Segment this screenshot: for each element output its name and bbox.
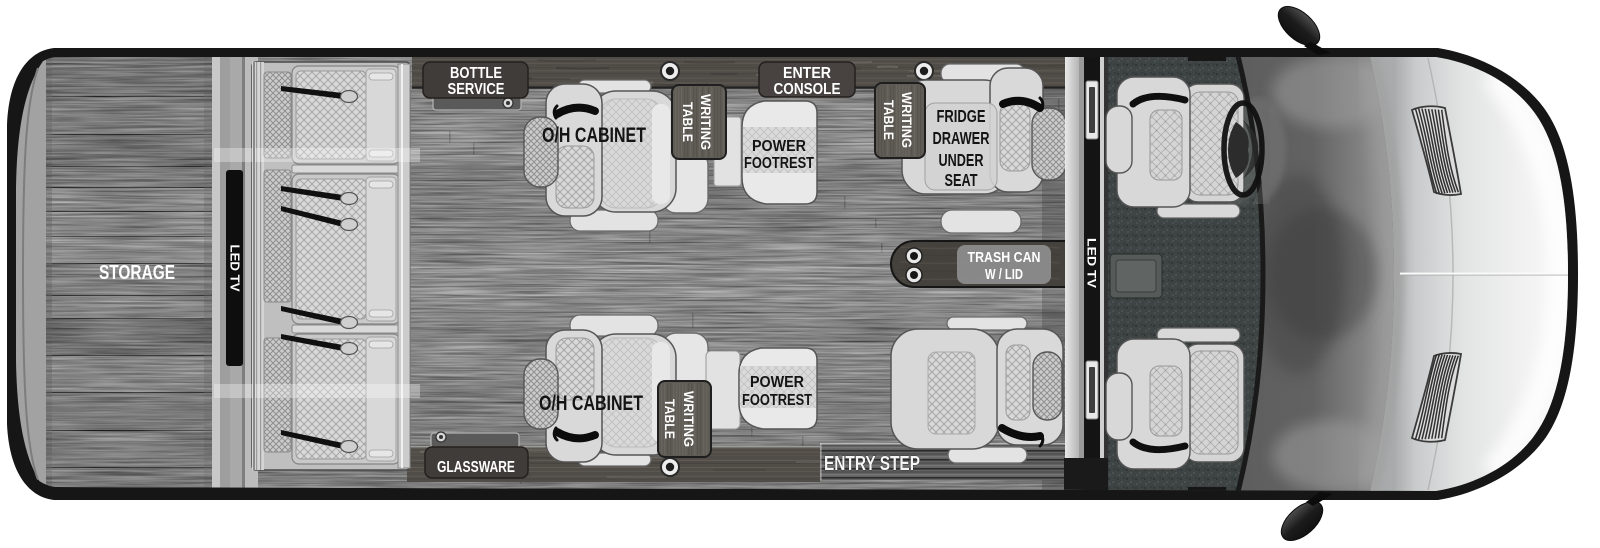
svg-text:DRAWER: DRAWER [933, 128, 990, 148]
svg-text:SEAT: SEAT [945, 170, 978, 190]
svg-text:FRIDGE: FRIDGE [937, 106, 986, 126]
svg-text:ENTER: ENTER [783, 65, 831, 82]
svg-text:TRASH CAN: TRASH CAN [968, 249, 1041, 266]
svg-text:O/H CABINET: O/H CABINET [542, 124, 646, 147]
svg-text:GLASSWARE: GLASSWARE [437, 459, 515, 476]
svg-text:O/H CABINET: O/H CABINET [539, 392, 643, 415]
svg-text:TABLE: TABLE [881, 100, 896, 140]
svg-text:WRITING: WRITING [899, 92, 914, 148]
svg-text:CONSOLE: CONSOLE [774, 81, 841, 98]
svg-text:WRITING: WRITING [698, 94, 713, 150]
svg-text:WRITING: WRITING [681, 391, 696, 447]
svg-text:W / LID: W / LID [985, 266, 1023, 283]
svg-text:LED TV: LED TV [227, 245, 242, 292]
svg-text:FOOTREST: FOOTREST [744, 155, 814, 172]
svg-text:TABLE: TABLE [680, 102, 695, 142]
svg-text:BOTTLE: BOTTLE [450, 65, 502, 82]
svg-text:LED TV: LED TV [1084, 238, 1096, 288]
svg-text:POWER: POWER [750, 374, 804, 391]
svg-text:SERVICE: SERVICE [448, 81, 505, 98]
svg-text:FOOTREST: FOOTREST [742, 392, 812, 409]
svg-text:ENTRY STEP: ENTRY STEP [824, 453, 920, 475]
svg-text:POWER: POWER [752, 138, 806, 155]
svg-text:TABLE: TABLE [662, 399, 677, 439]
svg-text:UNDER: UNDER [939, 150, 984, 170]
svg-text:STORAGE: STORAGE [99, 261, 175, 284]
